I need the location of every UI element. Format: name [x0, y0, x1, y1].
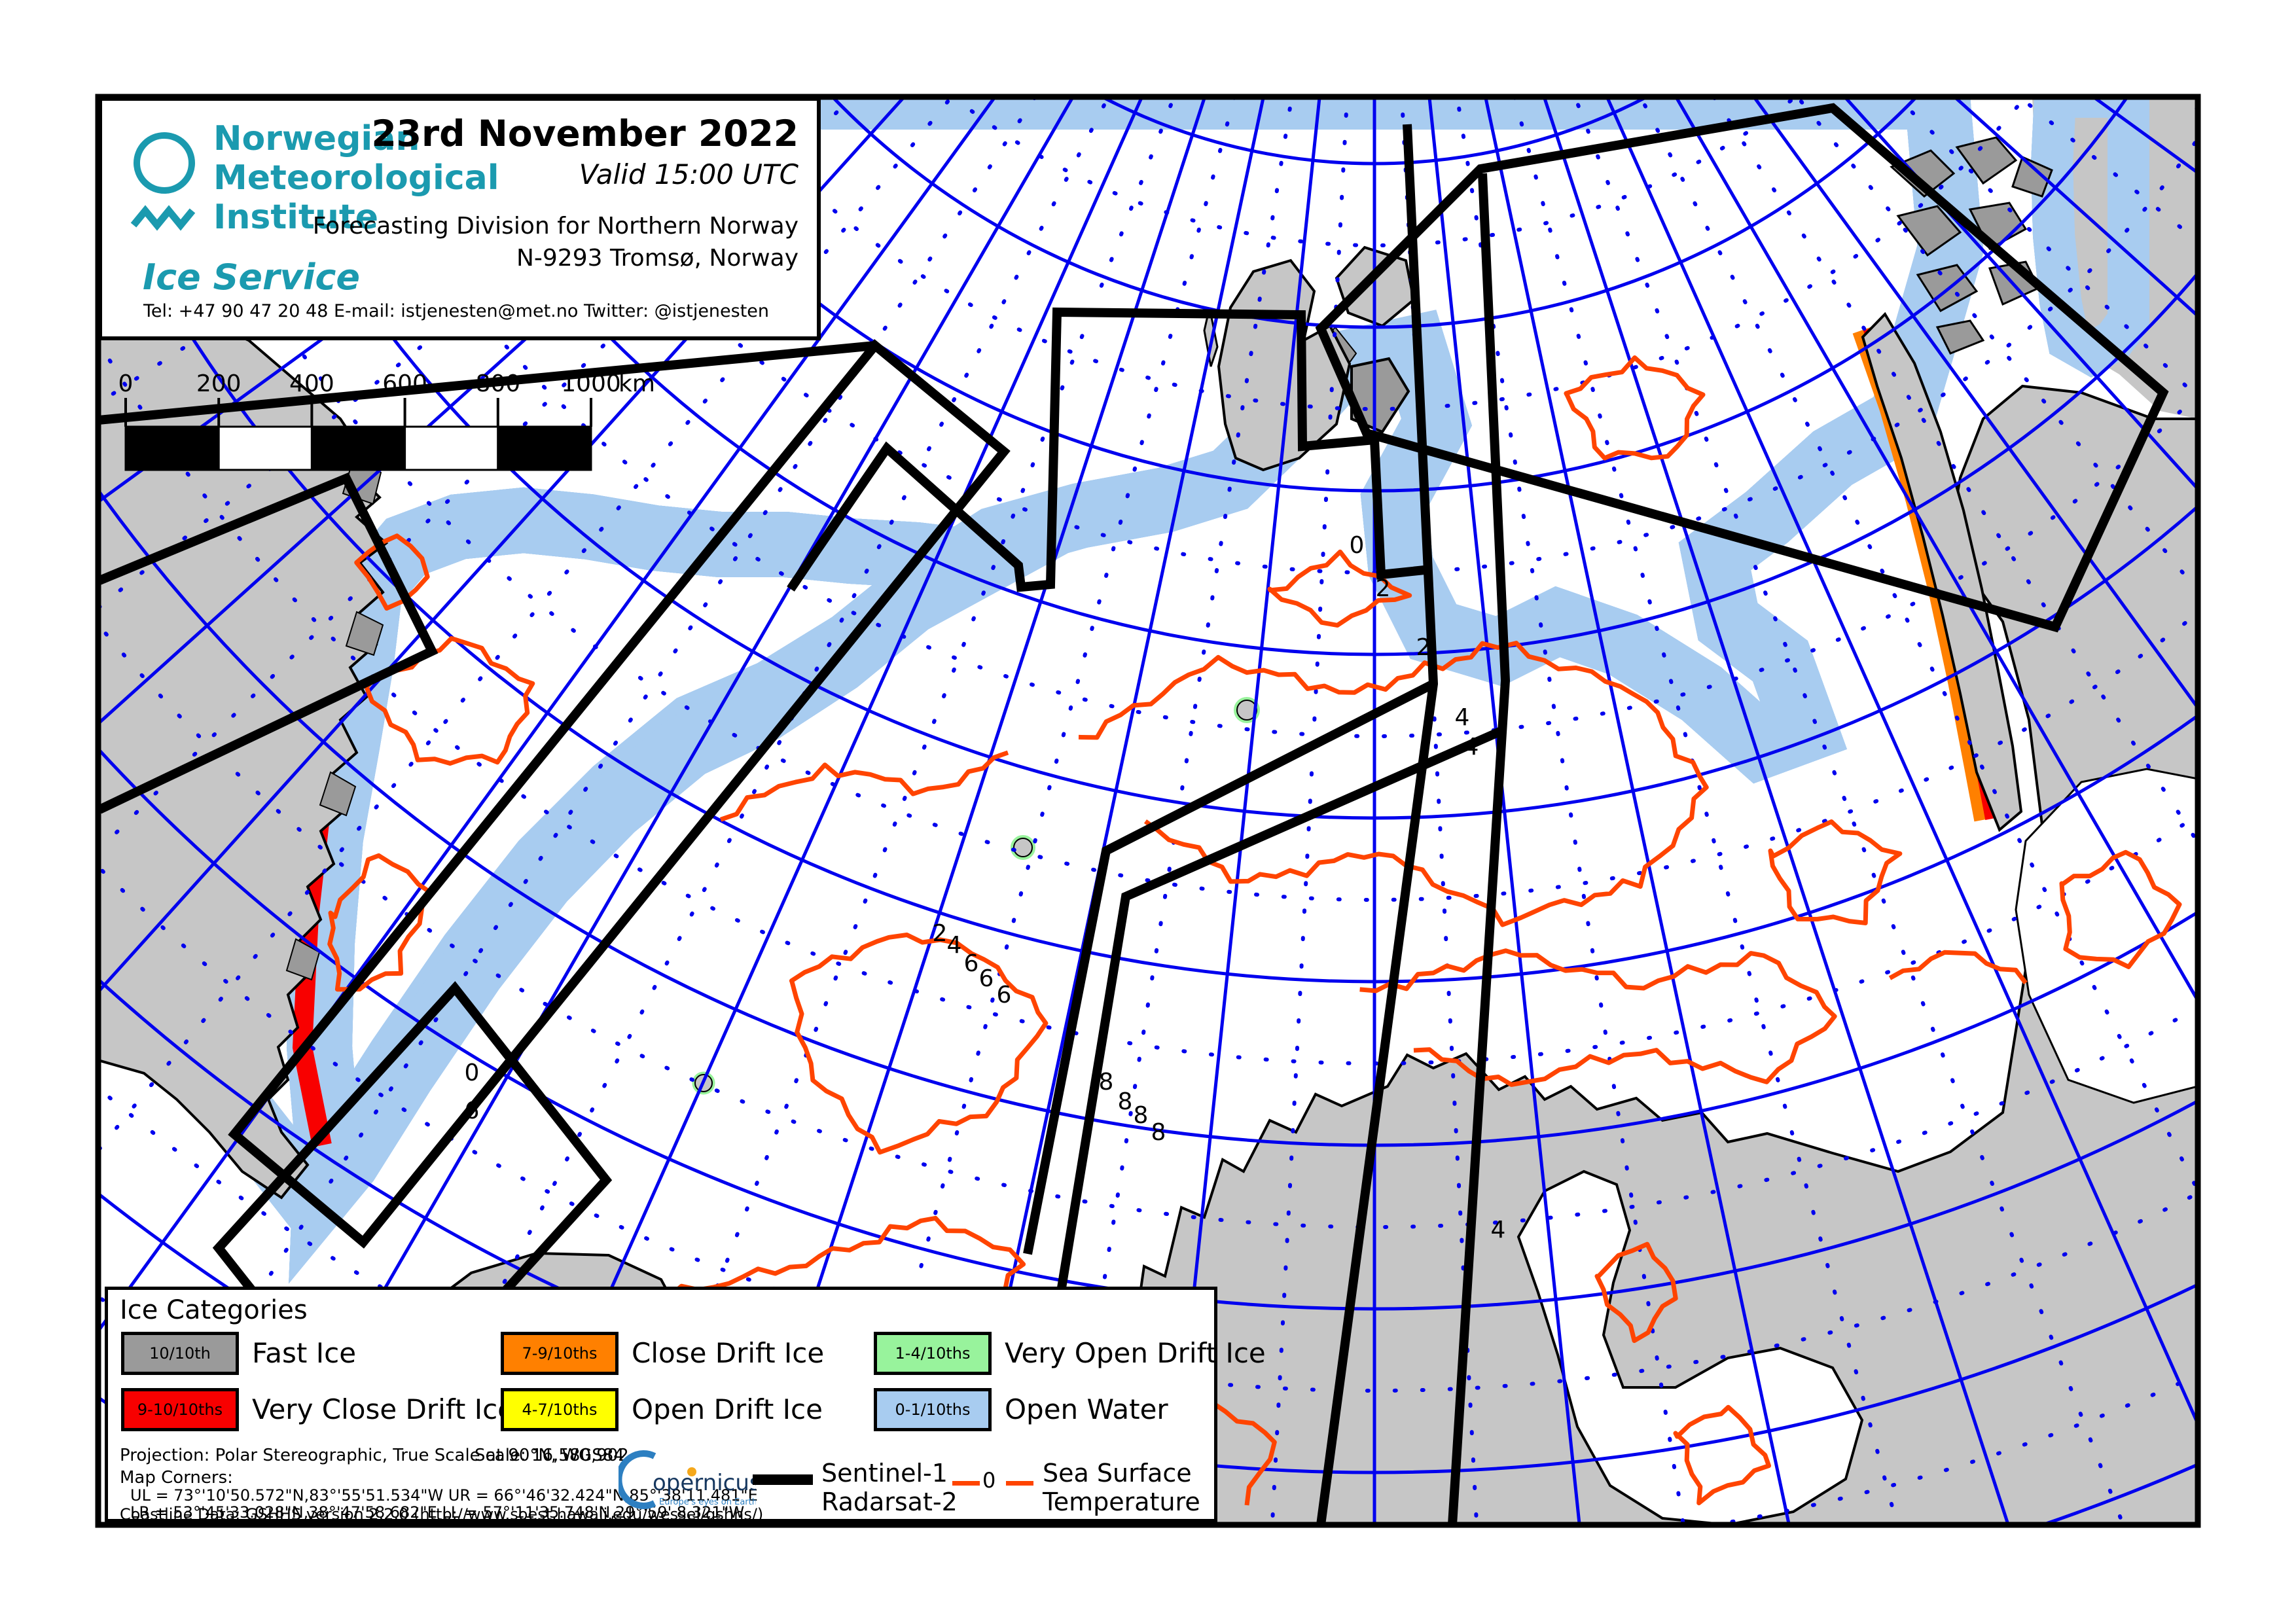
- address: N-9293 Tromsø, Norway: [313, 245, 798, 272]
- legend-label: Very Open Drift Ice: [1005, 1337, 1266, 1369]
- legend-chip-code: 9-10/10ths: [137, 1400, 223, 1419]
- legend-chip-code: 7-9/10ths: [522, 1344, 598, 1363]
- scalebar-tick-label: 1000: [561, 370, 621, 397]
- legend-chip-very-open-drift-ice: 1-4/10ths: [874, 1332, 992, 1375]
- sst-legend-labels: Sea Surface Temperature: [1043, 1459, 1200, 1516]
- legend-chip-open-drift-ice: 4-7/10ths: [501, 1388, 619, 1431]
- copernicus-tagline: Europe's eyes on Earth: [659, 1497, 756, 1507]
- sst-value-label: 8: [1134, 1102, 1149, 1129]
- sst-sample-line-left: [952, 1481, 980, 1486]
- scalebar-tick-label: 200: [196, 370, 242, 397]
- map-corners-title: Map Corners:: [120, 1468, 233, 1488]
- legend-label: Close Drift Ice: [632, 1337, 824, 1369]
- sst-value-label: 0: [1350, 532, 1365, 559]
- sst-value-label: 6: [964, 950, 979, 977]
- legend-chip-open-water: 0-1/10ths: [874, 1388, 992, 1431]
- legend-label: Very Close Drift Ice: [252, 1393, 514, 1425]
- scalebar-unit-label: km: [619, 370, 655, 397]
- satellite-legend-labels: Sentinel-1 Radarsat-2: [821, 1459, 958, 1516]
- sst-value-label: 4: [1455, 704, 1470, 731]
- forecast-division: Forecasting Division for Northern Norway: [313, 213, 798, 240]
- sst-value-label: 0: [465, 1060, 480, 1086]
- legend-chip-code: 4-7/10ths: [522, 1400, 598, 1419]
- sst-sample-line-right: [1006, 1481, 1033, 1486]
- sst-value-label: 6: [979, 965, 994, 992]
- legend-label: Open Drift Ice: [632, 1393, 823, 1425]
- copernicus-c-icon: [619, 1454, 655, 1506]
- scalebar-tick-label: 400: [289, 370, 334, 397]
- logo-wave-icon: [134, 211, 192, 225]
- scalebar-tick-label: 0: [118, 370, 134, 397]
- valid-time: Valid 15:00 UTC: [313, 158, 798, 190]
- sst-sample-value: 0: [982, 1468, 996, 1493]
- legend-chip-code: 1-4/10ths: [895, 1344, 971, 1363]
- sst-value-label: 8: [1151, 1119, 1166, 1146]
- contact-info: Tel: +47 90 47 20 48 E-mail: istjenesten…: [102, 301, 810, 321]
- scalebar-tick-label: 600: [382, 370, 427, 397]
- header-box: Norwegian Meteorological Institute Ice S…: [98, 97, 821, 340]
- met-institute-logo: [128, 127, 207, 245]
- legend-chip-code: 10/10th: [149, 1344, 211, 1363]
- legend-label: Fast Ice: [252, 1337, 356, 1369]
- scalebar-tick-label: 800: [475, 370, 520, 397]
- legend-label: Open Water: [1005, 1393, 1168, 1425]
- chart-date-title: 23rd November 2022: [313, 113, 798, 154]
- logo-circle-icon: [137, 135, 192, 190]
- sst-value-label: 6: [997, 982, 1012, 1008]
- sst-value-label: 2: [933, 920, 948, 947]
- legend-chip-very-close-drift-ice: 9-10/10ths: [121, 1388, 239, 1431]
- legend-chip-fast-ice: 10/10th: [121, 1332, 239, 1375]
- legend-chip-close-drift-ice: 7-9/10ths: [501, 1332, 619, 1375]
- sst-value-label: 8: [1118, 1088, 1133, 1115]
- legend-chip-code: 0-1/10ths: [895, 1400, 971, 1419]
- sst-value-label: 4: [947, 932, 962, 959]
- copernicus-name: opernicus: [653, 1470, 756, 1496]
- copernicus-logo: opernicus Europe's eyes on Earth: [619, 1447, 756, 1516]
- ice-chart-page: 24666888802244064 02004006008001000km No…: [0, 0, 2296, 1623]
- legend-box: Ice Categories 10/10thFast Ice7-9/10thsC…: [105, 1287, 1217, 1522]
- satellite-footprint-sample-line: [753, 1474, 813, 1485]
- sst-value-label: 4: [1491, 1217, 1506, 1243]
- scale-info: Scale: 16,580,902: [475, 1446, 629, 1465]
